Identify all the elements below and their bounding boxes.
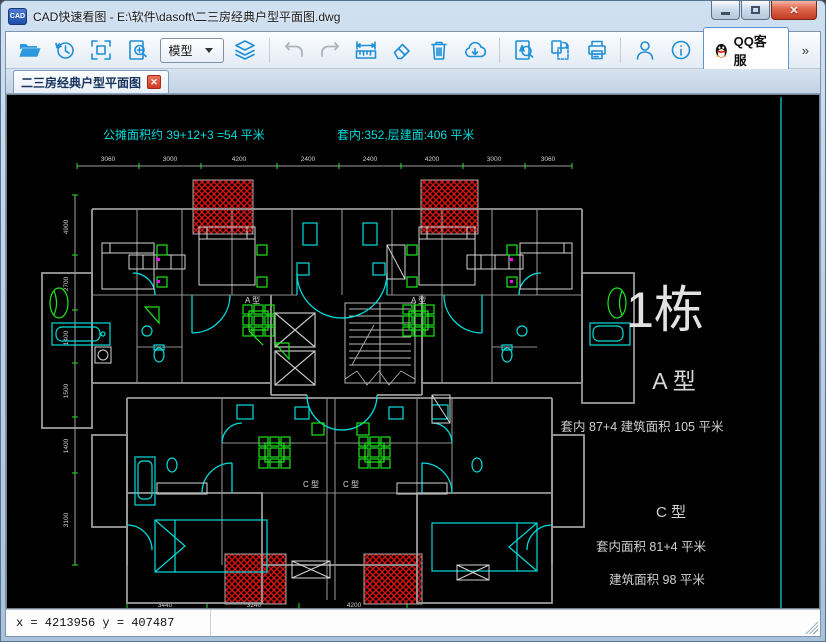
qq-service-label: QQ客服 [734,31,779,69]
building-number: 1栋 [626,282,704,338]
staircase [345,303,415,385]
window-body: 模型 [5,31,821,637]
fit-extents-icon [89,38,113,62]
open-file-button[interactable] [14,35,43,65]
dimension-top: 3060 3000 4200 2400 2400 4200 3000 3060 [77,156,572,169]
svg-text:3060: 3060 [541,156,556,163]
svg-text:4200: 4200 [425,156,440,163]
find-text-button[interactable] [509,35,538,65]
svg-text:4200: 4200 [347,602,362,609]
svg-text:C 型: C 型 [343,480,359,489]
marker-dots [157,258,513,283]
note-floor-area: 套内:352,层建面:406 平米 [337,128,474,142]
app-icon: CAD [8,8,27,25]
type-c-inner-area: 套内面积 81+4 平米 [596,539,707,554]
minimize-button[interactable] [711,1,740,20]
print-button[interactable] [582,35,611,65]
type-a-label: A 型 [652,368,695,394]
upper-block-partitions [92,209,582,383]
svg-text:2400: 2400 [301,156,316,163]
cloud-download-icon [463,38,487,62]
eraser-icon [391,38,415,62]
svg-text:A 型: A 型 [411,296,426,305]
history-icon [53,38,77,62]
redo-button[interactable] [315,35,344,65]
note-shared-area: 公摊面积约 39+12+3 =54 平米 [103,127,265,142]
close-button[interactable]: ✕ [771,1,817,20]
user-button[interactable] [630,35,659,65]
cursor-coordinates: x = 4213956 y = 407487 [6,610,211,636]
status-bar: x = 4213956 y = 407487 [6,609,820,636]
svg-text:1500: 1500 [63,383,70,398]
drawing-canvas[interactable]: 公摊面积约 39+12+3 =54 平米 套内:352,层建面:406 平米 3… [6,94,820,609]
history-button[interactable] [50,35,79,65]
measure-button[interactable] [352,35,381,65]
info-button[interactable] [667,35,696,65]
svg-text:3000: 3000 [163,156,178,163]
svg-text:1400: 1400 [63,438,70,453]
minimize-icon [721,12,730,15]
type-a-area: 套内 87+4 建筑面积 105 平米 [561,419,724,434]
window-title: CAD快速看图 - E:\软件\dasoft\二三房经典户型平面图.dwg [33,8,340,25]
user-icon [633,38,657,62]
tab-drawing[interactable]: 二三房经典户型平面图 ✕ [13,70,169,93]
trash-icon [427,38,451,62]
svg-text:4900: 4900 [63,219,70,234]
restore-button[interactable] [741,1,770,20]
toolbar-more-button[interactable]: » [796,43,812,58]
find-text-icon [512,38,536,62]
model-dropdown-value: 模型 [169,42,193,59]
delete-button[interactable] [424,35,453,65]
floor-plan: 公摊面积约 39+12+3 =54 平米 套内:352,层建面:406 平米 3… [7,95,811,609]
restore-icon [751,6,760,14]
eraser-button[interactable] [388,35,417,65]
qq-penguin-icon [713,42,730,59]
upper-block-walls [42,209,634,428]
title-bar[interactable]: CAD CAD快速看图 - E:\软件\dasoft\二三房经典户型平面图.dw… [1,1,825,31]
lower-block-partitions [127,398,552,600]
resize-grip[interactable] [805,621,818,634]
svg-text:A 型: A 型 [245,296,260,305]
type-c-label: C 型 [656,504,686,521]
svg-text:3060: 3060 [101,156,116,163]
cloud-download-button[interactable] [461,35,490,65]
svg-text:1400: 1400 [63,330,70,345]
toolbar-divider [620,38,621,63]
svg-text:2400: 2400 [363,156,378,163]
toolbar-divider [499,38,500,63]
copy-paste-button[interactable] [545,35,574,65]
zoom-document-icon [126,38,150,62]
app-window: CAD CAD快速看图 - E:\软件\dasoft\二三房经典户型平面图.dw… [0,0,826,642]
tab-label: 二三房经典户型平面图 [21,74,141,91]
layers-icon [233,38,257,62]
info-icon [669,38,693,62]
layers-button[interactable] [231,35,260,65]
door-arcs [127,273,552,550]
chevron-down-icon [205,48,213,53]
measure-icon [354,38,378,62]
qq-service-button[interactable]: QQ客服 [703,27,789,73]
tab-bar: 二三房经典户型平面图 ✕ [6,69,820,94]
close-icon: ✕ [789,4,798,17]
toolbar-divider [269,38,270,63]
copy-paste-icon [548,38,572,62]
undo-icon [282,38,306,62]
print-icon [585,38,609,62]
undo-button[interactable] [279,35,308,65]
svg-text:2700: 2700 [63,276,70,291]
svg-text:C 型: C 型 [303,480,319,489]
dimension-left: 4900 2700 1400 1500 1400 3100 [63,195,78,565]
svg-text:4200: 4200 [232,156,247,163]
tab-close-icon[interactable]: ✕ [147,75,161,89]
toolbar: 模型 [6,32,820,69]
zoom-document-button[interactable] [123,35,152,65]
type-c-total-area: 建筑面积 98 平米 [609,572,705,587]
redo-icon [318,38,342,62]
furniture-green [50,245,626,468]
svg-text:3000: 3000 [487,156,502,163]
fit-view-button[interactable] [87,35,116,65]
open-folder-icon [17,38,41,62]
svg-text:3100: 3100 [63,512,70,527]
model-dropdown[interactable]: 模型 [160,38,224,63]
